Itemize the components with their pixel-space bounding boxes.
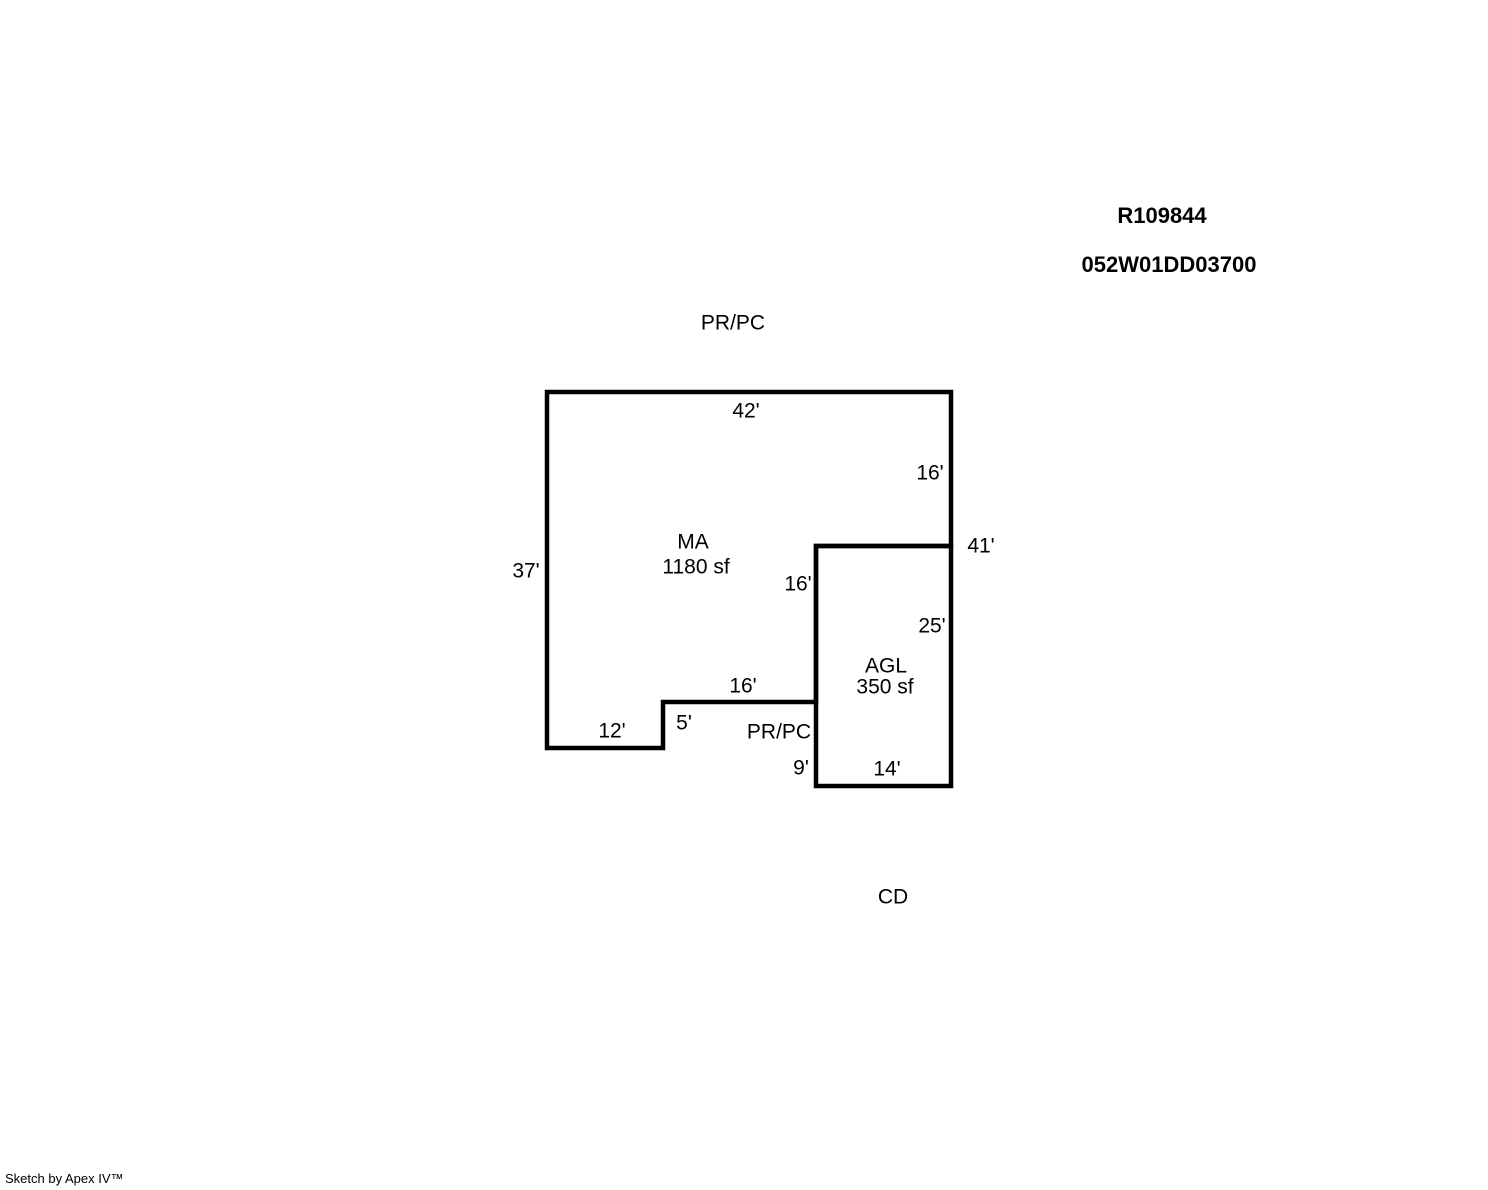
agl-area-size: 350 sf <box>856 677 913 698</box>
label-prpc-top: PR/PC <box>701 313 765 334</box>
dim-agl-right: 25' <box>918 616 945 637</box>
dim-ma-bottom: 16' <box>729 676 756 697</box>
agl-area-code: AGL <box>865 656 907 677</box>
dim-right-total: 41' <box>967 536 994 557</box>
dim-ma-bottom-left: 12' <box>598 721 625 742</box>
dim-agl-left-upper: 16' <box>784 574 811 595</box>
record-id: R109844 <box>1117 205 1206 227</box>
dim-agl-bottom: 14' <box>873 759 900 780</box>
dim-agl-left-lower: 9' <box>793 758 809 779</box>
dim-ma-right-upper: 16' <box>916 463 943 484</box>
dim-ma-top: 42' <box>732 401 759 422</box>
dim-ma-left: 37' <box>512 561 539 582</box>
dim-ma-step: 5' <box>676 713 692 734</box>
label-prpc-bottom: PR/PC <box>747 722 811 743</box>
parcel-number: 052W01DD03700 <box>1082 254 1257 276</box>
sketch-page: R109844 052W01DD03700 PR/PC 42' 16' 41' … <box>0 0 1488 1190</box>
ma-area-code: MA <box>677 532 709 553</box>
sketch-credit: Sketch by Apex IV™ <box>5 1171 124 1187</box>
label-cd: CD <box>878 887 908 908</box>
ma-area-size: 1180 sf <box>662 557 729 578</box>
sketch-drawing <box>0 0 1488 1190</box>
